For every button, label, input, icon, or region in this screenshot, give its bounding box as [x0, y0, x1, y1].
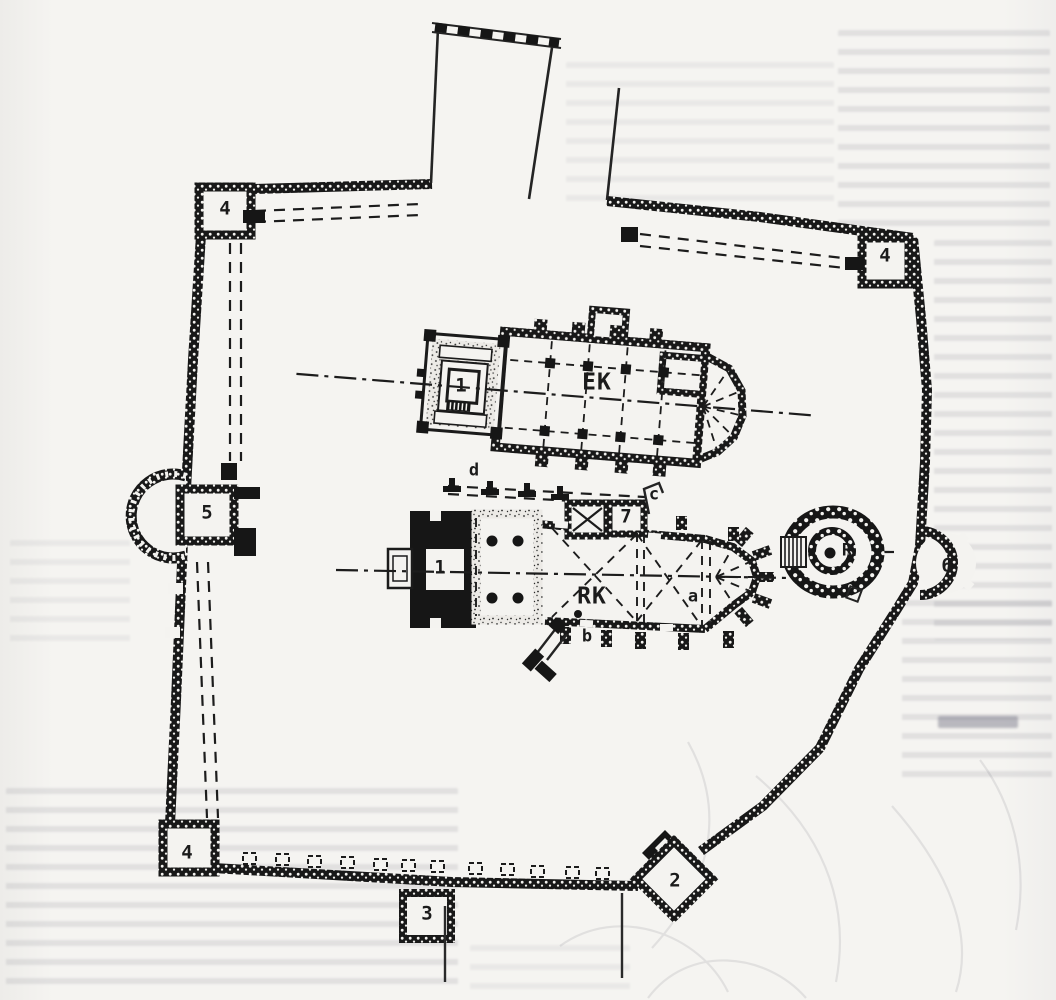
wall-fragment-block-west — [221, 463, 237, 480]
rk-westwork — [388, 511, 476, 628]
label-gate-5: 5 — [201, 504, 212, 523]
wall-fragment-block-east — [621, 227, 638, 242]
upper-church-ek — [291, 286, 820, 488]
label-upper-church: EK — [582, 372, 612, 395]
survey-lines — [445, 893, 622, 982]
scanned-plan-page: EK RK R 1 1 2 3 4 4 4 5 6 7 a b c d — [0, 0, 1056, 1000]
label-a: a — [688, 589, 698, 606]
label-c: c — [649, 487, 659, 504]
label-chapel-7: 7 — [620, 508, 631, 527]
label-b: b — [582, 629, 592, 646]
tower-northeast-4 — [845, 238, 909, 284]
label-rotunda: R — [842, 543, 852, 560]
label-upper-westwork: 1 — [455, 377, 466, 396]
label-d: d — [469, 463, 479, 480]
rotunda-r — [781, 512, 878, 602]
rk-pillared-hall — [476, 514, 538, 620]
label-lower-church: RK — [577, 586, 607, 609]
rk-passage-b — [522, 617, 567, 682]
west-gate-5 — [131, 474, 260, 558]
label-bastion-6: 6 — [941, 557, 952, 576]
label-gate-tower-2: 2 — [669, 872, 680, 891]
label-tower-4-nw: 4 — [219, 200, 230, 219]
label-tower-4-sw: 4 — [181, 844, 192, 863]
tower-northwest-4 — [199, 187, 265, 235]
monastery-ground-plan — [0, 0, 1056, 1000]
label-tower-4-ne: 4 — [879, 247, 890, 266]
label-tower-3: 3 — [421, 905, 432, 924]
label-lower-westwork: 1 — [434, 559, 445, 578]
forecourt-walls — [431, 23, 619, 200]
rotunda-annex — [781, 537, 806, 567]
